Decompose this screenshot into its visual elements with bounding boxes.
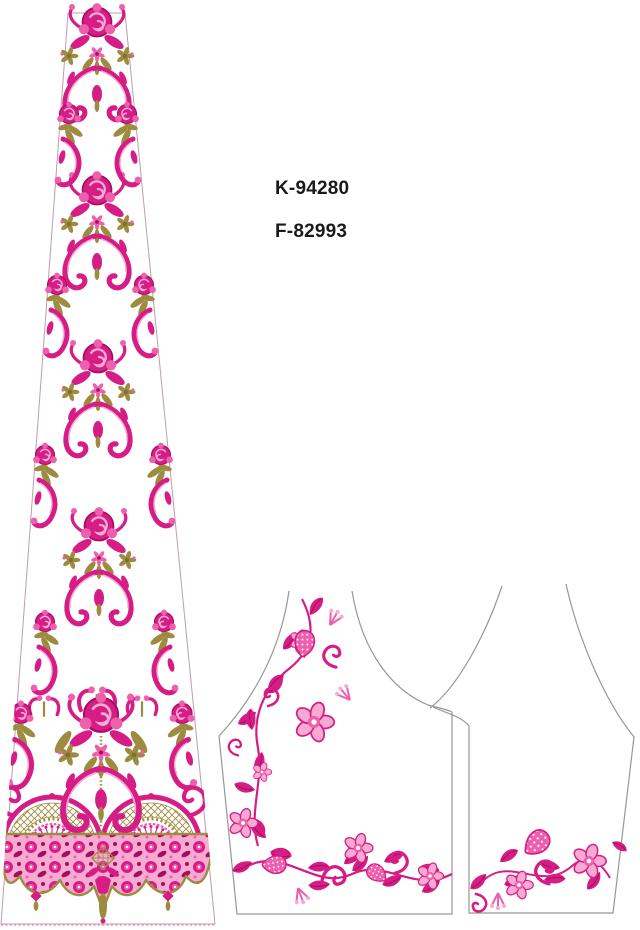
design-sheet: K-94280 F-82993 <box>0 0 640 930</box>
design-canvas <box>0 0 640 930</box>
panel-hem-border <box>0 686 211 923</box>
blouse-embroidery <box>228 595 629 911</box>
blouse-design <box>219 584 634 914</box>
lehenga-panel-design <box>0 3 215 925</box>
